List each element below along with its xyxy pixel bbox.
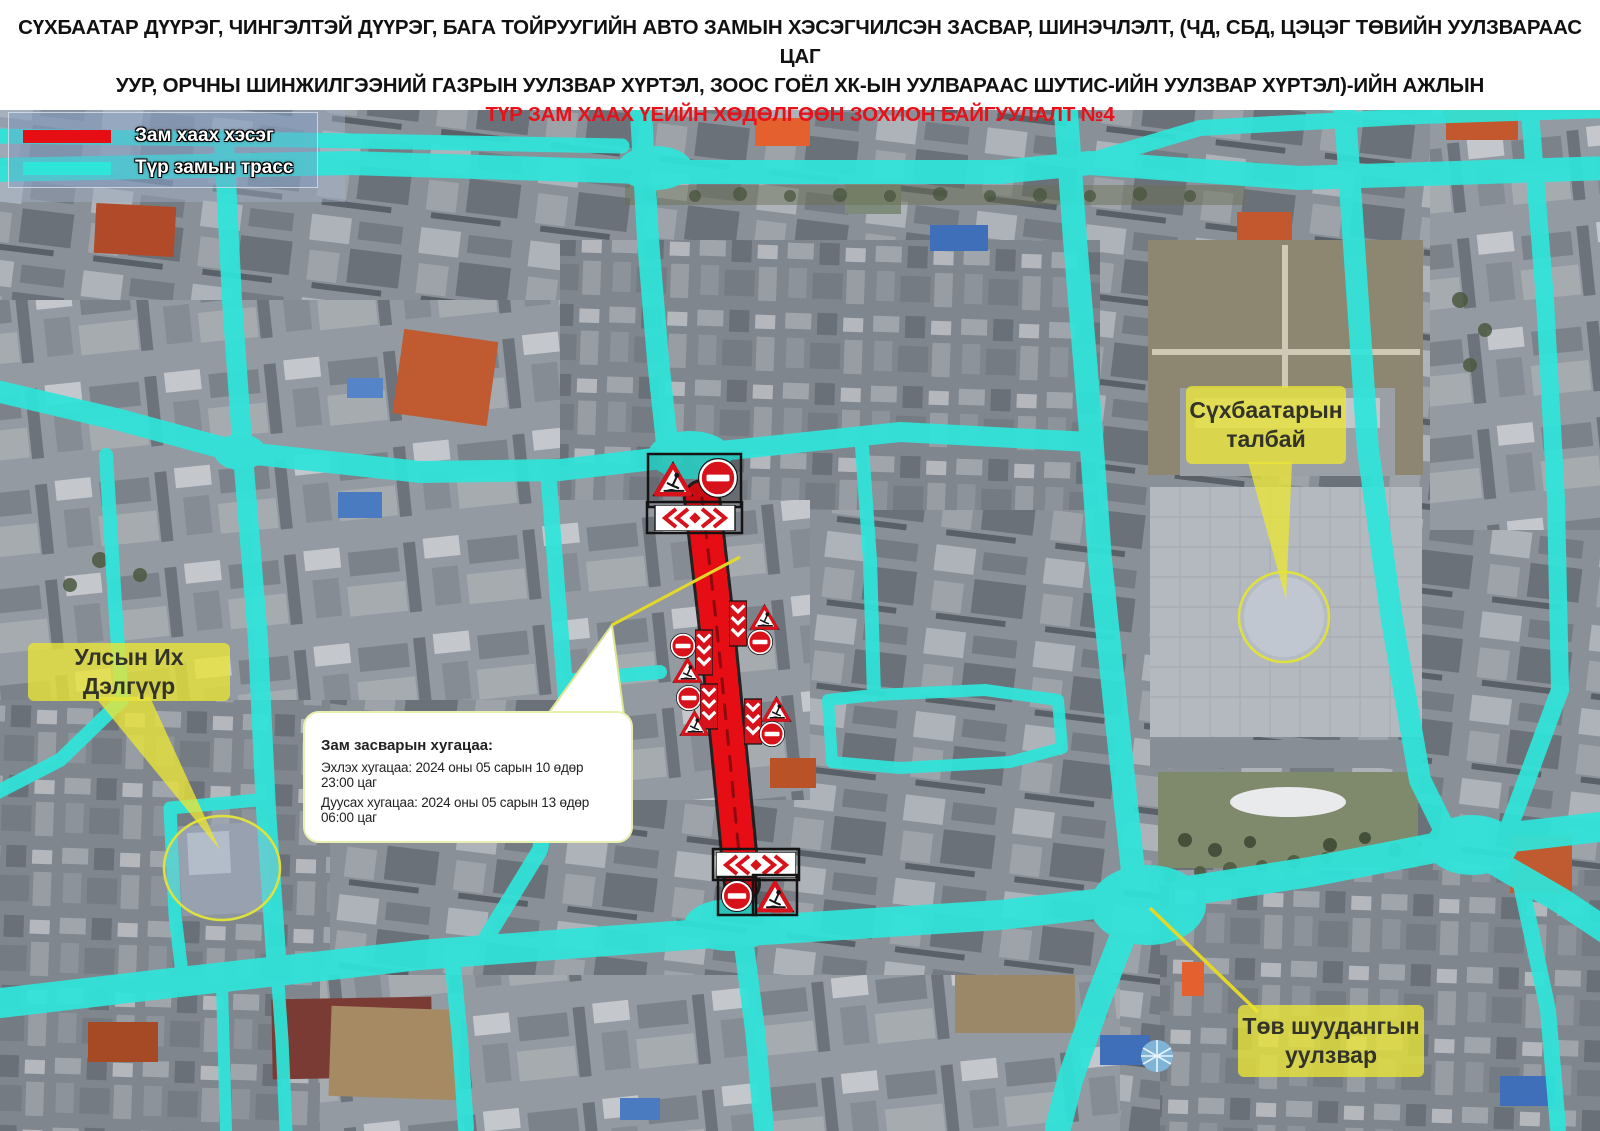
label-text: талбай	[1186, 425, 1346, 454]
label-text: уулзвар	[1238, 1041, 1424, 1070]
header-line2: УУР, ОРЧНЫ ШИНЖИЛГЭЭНИЙ ГАЗРЫН УУЛЗВАР Х…	[0, 71, 1600, 100]
header-line1: СҮХБААТАР ДҮҮРЭГ, ЧИНГЭЛТЭЙ ДҮҮРЭГ, БАГА…	[0, 13, 1600, 71]
no-entry-sign-icon	[671, 634, 696, 659]
chevron-board-icon	[695, 630, 713, 675]
header-line3: ТҮР ЗАМ ХААХ ҮЕИЙН ХӨДӨЛГӨӨН ЗОХИОН БАЙГ…	[0, 100, 1600, 129]
map-area: Зам хаах хэсэг Түр замын трасс Улсын Их …	[0, 110, 1600, 1131]
satellite-map	[0, 110, 1600, 1131]
repair-schedule-box: Зам засварын хугацаа: Эхлэх хугацаа: 202…	[303, 711, 633, 843]
chevron-board-icon	[700, 684, 718, 729]
header: СҮХБААТАР ДҮҮРЭГ, ЧИНГЭЛТЭЙ ДҮҮРЭГ, БАГА…	[0, 0, 1600, 110]
no-entry-sign-icon	[722, 881, 752, 911]
label-text: Сүхбаатарын	[1186, 396, 1346, 425]
label-central-post-intersection: Төв шуудангын уулзвар	[1238, 1005, 1424, 1077]
label-text: Төв шуудангын	[1238, 1012, 1424, 1041]
label-department-store: Улсын Их Дэлгүүр	[28, 643, 230, 701]
closure-end-signs	[713, 849, 799, 915]
label-sukhbaatar-square: Сүхбаатарын талбай	[1186, 386, 1346, 464]
road-closure-poster: СҮХБААТАР ДҮҮРЭГ, ЧИНГЭЛТЭЙ ДҮҮРЭГ, БАГА…	[0, 0, 1600, 1131]
closure-start-signs	[647, 454, 742, 533]
schedule-end: Дуусах хугацаа: 2024 оны 05 сарын 13 өдө…	[321, 795, 619, 825]
detour-route-swatch	[23, 162, 111, 175]
ferris-wheel	[1141, 1040, 1173, 1072]
schedule-start: Эхлэх хугацаа: 2024 оны 05 сарын 10 өдөр…	[321, 760, 619, 790]
closed-road-swatch	[23, 130, 111, 143]
legend-item-detour-route: Түр замын трасс	[23, 152, 317, 184]
no-entry-sign-icon	[677, 686, 702, 711]
no-entry-sign-icon	[699, 459, 737, 497]
no-entry-sign-icon	[760, 722, 785, 747]
no-entry-sign-icon	[748, 630, 773, 655]
detour-chevron-board-icon	[655, 505, 735, 531]
chevron-board-icon	[729, 601, 747, 646]
legend-label: Түр замын трасс	[135, 157, 293, 179]
schedule-title: Зам засварын хугацаа:	[321, 737, 619, 754]
chevron-board-icon	[744, 699, 762, 744]
label-text: Улсын Их Дэлгүүр	[28, 643, 230, 701]
